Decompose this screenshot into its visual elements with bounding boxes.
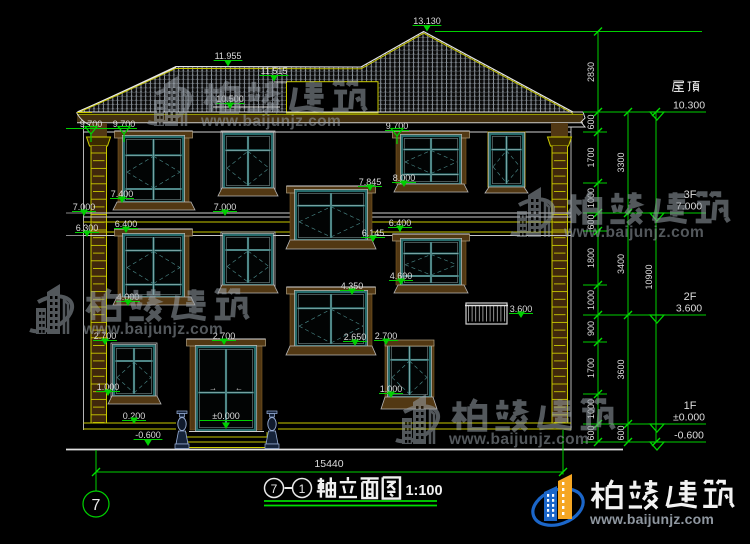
svg-text:2830: 2830 [586,62,596,82]
svg-text:9.700: 9.700 [386,121,409,131]
svg-text:www.baijunjz.com: www.baijunjz.com [563,224,704,241]
svg-text:www.baijunjz.com: www.baijunjz.com [82,321,223,338]
svg-text:1700: 1700 [586,147,596,167]
svg-text:10900: 10900 [644,264,654,289]
svg-text:600: 600 [586,114,596,129]
svg-text:9.700: 9.700 [80,119,103,129]
svg-text:10.300: 10.300 [673,100,705,112]
svg-text:600: 600 [616,425,626,440]
svg-text:3.600: 3.600 [676,303,702,315]
svg-text:1800: 1800 [586,248,596,268]
svg-text:1000: 1000 [586,290,596,310]
svg-text:-0.600: -0.600 [135,430,161,440]
svg-text:15440: 15440 [314,458,343,470]
svg-text:2F: 2F [684,291,697,303]
svg-text:11.955: 11.955 [215,51,242,61]
svg-text:-0.600: -0.600 [674,430,704,442]
svg-text:900: 900 [586,321,596,336]
svg-text:3F: 3F [684,189,697,201]
svg-text:±0.000: ±0.000 [212,411,239,421]
svg-text:3600: 3600 [616,359,626,379]
svg-text:3400: 3400 [616,254,626,274]
svg-text:1700: 1700 [586,358,596,378]
svg-text:7: 7 [271,482,278,496]
svg-text:www.baijunjz.com: www.baijunjz.com [448,431,589,448]
svg-text:1:100: 1:100 [405,483,442,499]
svg-text:13.130: 13.130 [413,16,441,26]
svg-text:www.baijunjz.com: www.baijunjz.com [589,511,714,527]
svg-text:1: 1 [299,482,306,496]
svg-text:11.515: 11.515 [261,66,288,76]
svg-text:1F: 1F [684,400,697,412]
svg-text:9.700: 9.700 [113,119,136,129]
svg-text:←: ← [235,384,243,393]
svg-text:3300: 3300 [616,152,626,172]
svg-text:→: → [209,384,217,393]
svg-text:7: 7 [92,497,101,514]
svg-text:www.baijunjz.com: www.baijunjz.com [200,113,341,130]
svg-text:±0.000: ±0.000 [673,412,705,424]
